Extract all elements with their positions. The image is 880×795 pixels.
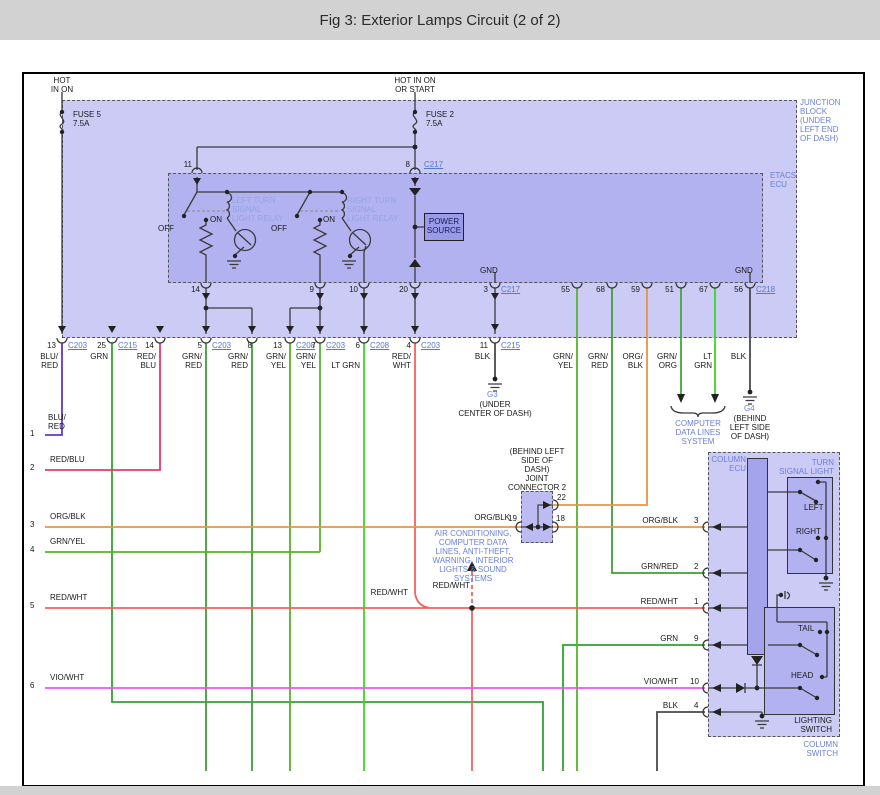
pin-11-jb: 11 — [474, 341, 488, 350]
row-3-wire: ORG/BLK — [50, 512, 94, 521]
row-4-wire: GRN/YEL — [50, 537, 94, 546]
fuse5-label: FUSE 5 7.5A — [73, 110, 117, 128]
gnd-label-2: GND — [735, 266, 759, 275]
pin-51-etacs: 51 — [660, 285, 674, 294]
wire-label-red-wht-mid: RED/WHT — [368, 588, 408, 597]
joint-connector-2-box — [521, 491, 553, 543]
on-label-left: ON — [210, 215, 230, 224]
pin-22-joint: 22 — [557, 493, 571, 502]
right-relay-label: RIGHT TURN SIGNAL LIGHT RELAY — [347, 196, 411, 223]
pin-3-etacs: 3 — [478, 285, 488, 294]
row-2-number: 2 — [30, 463, 40, 472]
column-switch-label: COLUMN SWITCH — [788, 740, 838, 758]
left-switch-label: LEFT — [804, 503, 830, 512]
col-pin4-wire: BLK — [636, 701, 678, 710]
wire-label-red-blu: RED/ BLU — [128, 352, 156, 370]
pin-19-joint: 19 — [503, 514, 517, 523]
pin-11-top: 11 — [178, 160, 192, 169]
row-4-number: 4 — [30, 545, 40, 554]
row-3-number: 3 — [30, 520, 40, 529]
wire-label-blu-red: BLU/ RED — [30, 352, 58, 370]
wire-label-grn-red-2: GRN/ RED — [220, 352, 248, 370]
bottom-bar — [0, 786, 880, 795]
col-pin9-wire: GRN — [636, 634, 678, 643]
wire-label-blk-2: BLK — [724, 352, 746, 361]
joint-connector-label: (BEHIND LEFT SIDE OF DASH) JOINT CONNECT… — [496, 447, 578, 492]
col-pin3-wire: ORG/BLK — [636, 516, 678, 525]
connector-link-c217-bottom[interactable]: C217 — [501, 285, 527, 294]
col-pin2-wire: GRN/RED — [636, 562, 678, 571]
pin-55-etacs: 55 — [556, 285, 570, 294]
left-relay-label: LEFT TURN SIGNAL LIGHT RELAY — [232, 196, 294, 223]
lighting-switch-label: LIGHTING SWITCH — [786, 716, 832, 734]
wire-label-grn-org: GRN/ ORG — [649, 352, 677, 370]
wire-label-grn: GRN — [82, 352, 108, 361]
turn-signal-light-label: TURN SIGNAL LIGHT — [774, 458, 834, 476]
connector-link-c203-2[interactable]: C203 — [212, 341, 238, 350]
junction-block-label: JUNCTION BLOCK (UNDER LEFT END OF DASH) — [800, 98, 858, 143]
pin-68-etacs: 68 — [591, 285, 605, 294]
pin-67-etacs: 67 — [694, 285, 708, 294]
etacs-ecu-box — [168, 173, 763, 283]
pin-6-jb: 6 — [348, 341, 360, 350]
pin-25-jb: 25 — [92, 341, 106, 350]
head-switch-label: HEAD — [791, 671, 819, 680]
connector-link-c215-2[interactable]: C215 — [501, 341, 527, 350]
col-pin9-num: 9 — [694, 634, 704, 643]
page: { "title": "Fig 3: Exterior Lamps Circui… — [0, 0, 880, 795]
ground-g4-location: (BEHIND LEFT SIDE OF DASH) — [716, 414, 784, 441]
tail-switch-label: TAIL — [798, 624, 822, 633]
connector-link-c217-top[interactable]: C217 — [424, 160, 450, 169]
col-pin10-num: 10 — [690, 677, 704, 686]
connector-link-c218[interactable]: C218 — [756, 285, 782, 294]
ground-g3-location: (UNDER CENTER OF DASH) — [447, 400, 543, 418]
pin-7-jb: 7 — [304, 341, 316, 350]
pin-13b-jb: 13 — [268, 341, 282, 350]
col-pin1-num: 1 — [694, 597, 704, 606]
pin-8-jb: 8 — [240, 341, 252, 350]
fuse2-label: FUSE 2 7.5A — [426, 110, 470, 128]
wire-label-red-wht-arrow: RED/WHT — [430, 581, 470, 590]
col-pin2-num: 2 — [694, 562, 704, 571]
pin-56-etacs: 56 — [729, 285, 743, 294]
wire-label-grn-yel-3: GRN/ YEL — [545, 352, 573, 370]
off-label-left: OFF — [158, 224, 180, 233]
pin-4-jb: 4 — [399, 341, 411, 350]
pin-8-top: 8 — [398, 160, 410, 169]
power-source-label: POWER SOURCE — [424, 217, 464, 235]
pin-20-etacs: 20 — [394, 285, 408, 294]
row-2-wire: RED/BLU — [50, 455, 94, 464]
row-6-wire: VIO/WHT — [50, 673, 94, 682]
row-5-wire: RED/WHT — [50, 593, 94, 602]
pin-10-etacs: 10 — [344, 285, 358, 294]
col-pin10-wire: VIO/WHT — [636, 677, 678, 686]
air-conditioning-note: AIR CONDITIONING, COMPUTER DATA LINES, A… — [428, 529, 518, 583]
ground-g3-label: G3 — [487, 390, 507, 399]
hot-left-label: HOT IN ON — [40, 76, 84, 94]
on-label-right: ON — [323, 215, 343, 224]
pin-5-jb: 5 — [190, 341, 202, 350]
col-pin3-num: 3 — [694, 516, 704, 525]
row-6-number: 6 — [30, 681, 40, 690]
wire-label-grn-yel-1: GRN/ YEL — [258, 352, 286, 370]
wire-label-lt-grn-1: LT GRN — [326, 361, 360, 370]
wire-label-org-blk-1: ORG/ BLK — [615, 352, 643, 370]
wire-label-grn-yel-2: GRN/ YEL — [288, 352, 316, 370]
pin-13-jb: 13 — [42, 341, 56, 350]
pin-59-etacs: 59 — [626, 285, 640, 294]
wire-label-lt-grn-2: LT GRN — [688, 352, 712, 370]
pin-18-joint: 18 — [556, 514, 570, 523]
wire-label-grn-red-1: GRN/ RED — [174, 352, 202, 370]
hot-right-label: HOT IN ON OR START — [384, 76, 446, 94]
wire-label-red-wht-1: RED/ WHT — [383, 352, 411, 370]
wire-label-blk-1: BLK — [466, 352, 490, 361]
off-label-right: OFF — [271, 224, 293, 233]
ground-g4-label: G4 — [744, 404, 764, 413]
figure-title: Fig 3: Exterior Lamps Circuit (2 of 2) — [320, 12, 561, 29]
row-1-number: 1 — [30, 429, 40, 438]
connector-link-c203-1[interactable]: C203 — [68, 341, 94, 350]
connector-link-c208-2[interactable]: C208 — [370, 341, 396, 350]
col-pin4-num: 4 — [694, 701, 704, 710]
gnd-label-1: GND — [480, 266, 504, 275]
column-ecu-label: COLUMN ECU — [710, 455, 746, 473]
col-pin1-wire: RED/WHT — [636, 597, 678, 606]
turn-signal-switch-box — [787, 477, 833, 574]
etacs-ecu-label: ETACS ECU — [770, 171, 810, 189]
right-switch-label: RIGHT — [796, 527, 828, 536]
pin-14-etacs: 14 — [186, 285, 200, 294]
wire-label-grn-red-3: GRN/ RED — [580, 352, 608, 370]
pin-9-etacs: 9 — [302, 285, 314, 294]
row-5-number: 5 — [30, 601, 40, 610]
row-1-wire: BLU/ RED — [48, 413, 76, 431]
pin-14-jb: 14 — [140, 341, 154, 350]
connector-link-c203-4[interactable]: C203 — [421, 341, 447, 350]
title-bar: Fig 3: Exterior Lamps Circuit (2 of 2) — [0, 0, 880, 40]
